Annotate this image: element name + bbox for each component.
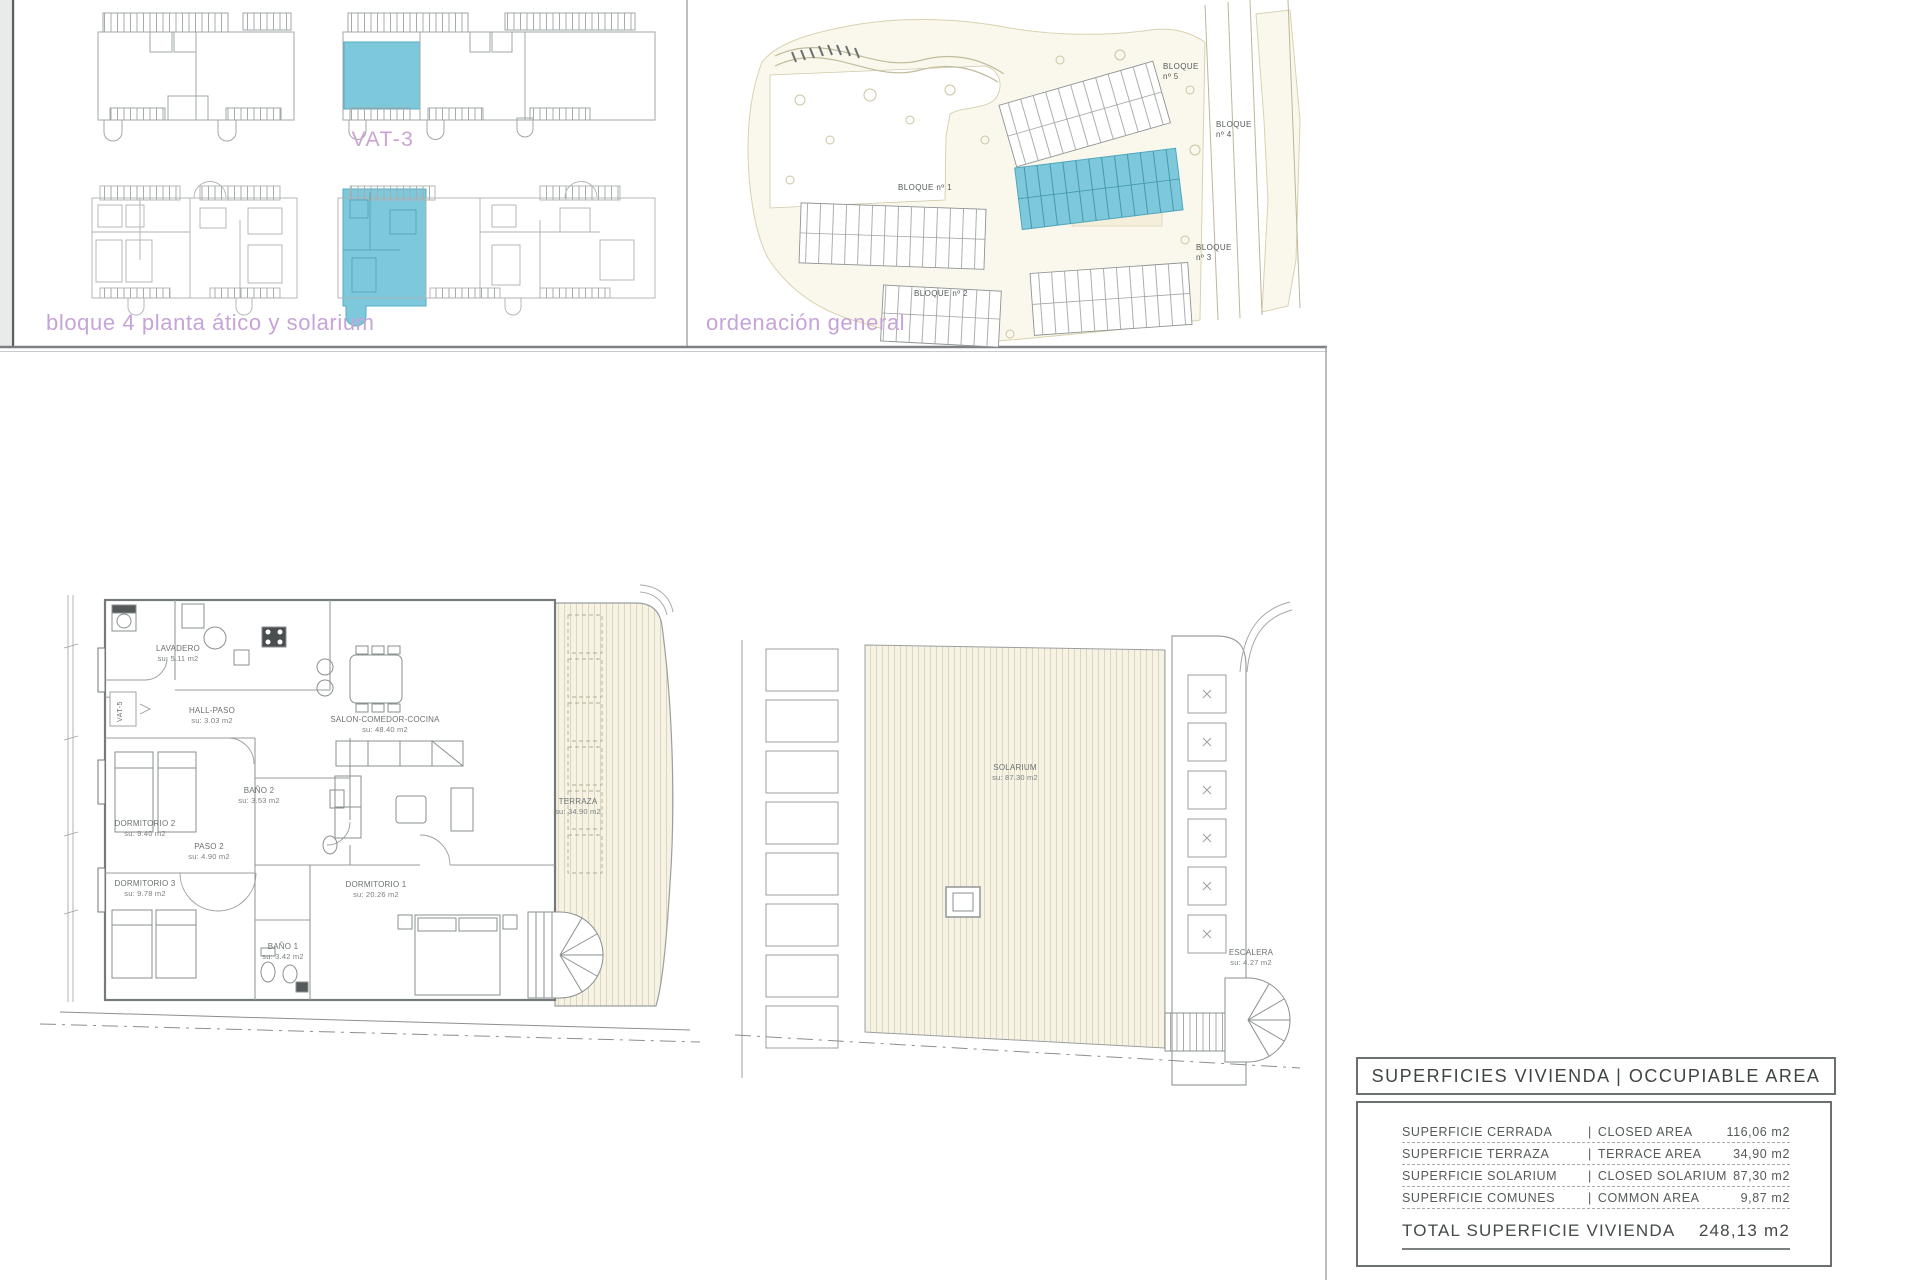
bloque-1-shape [799, 203, 986, 269]
dorm3-beds [112, 910, 196, 978]
room-label-escalera: ESCALERA su: 4.27 m2 [1201, 948, 1301, 968]
bloque-3-label: BLOQUE nº 3 [1196, 243, 1232, 262]
dimension-line [64, 595, 78, 1002]
room-label-lavadero: LAVADERO su: 5.11 m2 [138, 644, 218, 664]
caption-site-plan: ordenación general [706, 310, 905, 336]
room-label-bano1: BAÑO 1 su: 3.42 m2 [243, 942, 323, 962]
caption-block-plan: bloque 4 planta ático y solarium [46, 310, 375, 336]
room-label-paso2: PASO 2 su: 4.90 m2 [169, 842, 249, 862]
miniplan-atico-level [92, 182, 655, 326]
area-table-title: SUPERFICIES VIVIENDA | OCCUPIABLE AREA [1356, 1057, 1836, 1095]
miniplan-solarium-level [98, 13, 655, 141]
solarium-deck [865, 645, 1165, 1048]
planter-boxes [766, 649, 838, 1048]
room-label-dorm3: DORMITORIO 3 su: 9.78 m2 [95, 879, 195, 899]
site-plan [748, 0, 1300, 347]
room-label-dorm1: DORMITORIO 1 su: 20.26 m2 [316, 880, 436, 900]
bloque-4-label: BLOQUE nº 4 [1216, 120, 1252, 139]
bloque-2-label: BLOQUE nº 2 [914, 289, 968, 299]
unit-tag-vat5: VAT-5 [117, 701, 124, 722]
table-total-row: TOTAL SUPERFICIE VIVIENDA 248,13 m2 [1402, 1213, 1790, 1250]
bloque-3-shape [1030, 262, 1192, 335]
room-label-dorm2: DORMITORIO 2 su: 9.40 m2 [95, 819, 195, 839]
lavadero-fixtures [112, 605, 136, 631]
vat3-atico-highlight [343, 189, 426, 326]
unit-tag-vat3: VAT-3 [338, 128, 428, 152]
room-label-salon: SALON-COMEDOR-COCINA su: 48.40 m2 [320, 715, 450, 735]
table-row: SUPERFICIE CERRADA | CLOSED AREA 116,06 … [1402, 1125, 1790, 1143]
vat5-box [110, 692, 150, 726]
bloque-1-label: BLOQUE nº 1 [898, 183, 952, 193]
room-label-hall: HALL-PASO su: 3.03 m2 [167, 706, 257, 726]
plan-sheet: VAT-3 bloque 4 planta ático y solarium o… [0, 0, 1920, 1280]
living-furniture [335, 741, 473, 838]
bloque-5-label: BLOQUE nº 5 [1163, 62, 1199, 81]
solarium-plan [735, 602, 1300, 1085]
vat3-solarium-highlight [344, 42, 420, 109]
skylight [946, 887, 980, 917]
room-label-solarium: SOLARIUM su: 87.30 m2 [955, 763, 1075, 783]
room-label-bano2: BAÑO 2 su: 3.53 m2 [219, 786, 299, 806]
dorm1-bed [398, 915, 517, 995]
table-row: SUPERFICIE SOLARIUM | CLOSED SOLARIUM 87… [1402, 1169, 1790, 1187]
area-table: SUPERFICIE CERRADA | CLOSED AREA 116,06 … [1356, 1101, 1832, 1267]
table-row: SUPERFICIE TERRAZA | TERRACE AREA 34,90 … [1402, 1147, 1790, 1165]
table-row: SUPERFICIE COMUNES | COMMON AREA 9,87 m2 [1402, 1191, 1790, 1209]
site-boundary-east [1256, 10, 1300, 312]
room-label-terraza: TERRAZA su: 34.90 m2 [538, 797, 618, 817]
